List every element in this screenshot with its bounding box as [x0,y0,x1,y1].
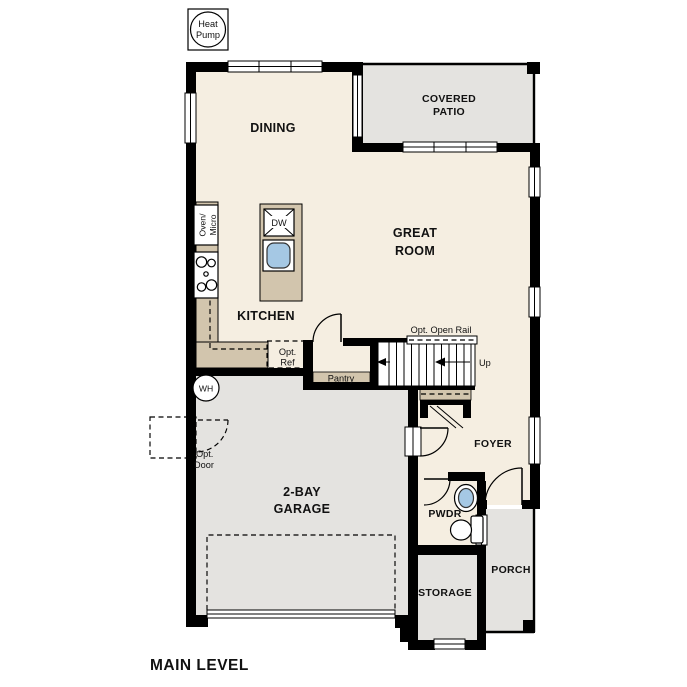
wall-storage-bottom-right [465,640,486,650]
oven-micro-label-2: Micro [208,214,218,235]
heat-pump-icon: Heat Pump [188,9,228,50]
wall-closet-stub-right [463,405,471,418]
heat-pump-label-2: Pump [196,30,220,40]
wall-storage-jog [400,617,418,642]
window-dining-left [185,93,196,143]
wall-garage-right [408,385,418,642]
window-greatroom-lower [529,287,540,317]
wall-storage-bottom-left [408,640,435,650]
covered-patio-label-1: COVERED [422,93,476,105]
wall-powder-porch [477,481,486,650]
up-label: Up [479,358,491,368]
wall-powder-top [448,472,485,481]
opt-open-rail-label: Opt. Open Rail [411,325,472,335]
storage-door [434,639,465,649]
water-heater-label: WH [199,384,213,394]
great-room-label-2: ROOM [395,244,435,258]
garage-entry-opening [405,427,421,456]
opt-ref-label-1: Opt. [279,347,296,357]
wall-closet-stub-left [420,405,428,418]
counter-bottom [196,342,268,368]
oven-micro-label-1: Oven/ [198,213,208,237]
floor-plan: Oven/ Micro DW Opt. Ref [0,0,687,687]
foyer-label: FOYER [474,438,512,450]
opt-ref-label-2: Ref [280,358,295,368]
cooktop-icon [194,252,218,298]
opt-door-label-2: Door [194,460,214,470]
window-patio-slider [403,142,497,152]
water-heater-icon: WH [193,375,219,401]
wall-storage-top [408,545,486,555]
pantry-label: Pantry [328,374,355,384]
heat-pump-label-1: Heat [198,19,218,29]
wall-exterior-left [186,62,196,625]
porch-label: PORCH [491,564,530,576]
window-dining-patio [353,75,362,137]
floor-plan-page: Oven/ Micro DW Opt. Ref [0,0,687,687]
wall-closet [420,400,471,405]
oven-micro: Oven/ Micro [194,205,218,245]
open-rail [407,336,477,344]
window-foyer [529,417,540,464]
window-dining-top [228,61,322,72]
window-greatroom-upper [529,167,540,197]
wall-garage-bottom-left [186,615,208,627]
storage-label: STORAGE [418,587,472,599]
wall-foyer-porch-right [522,500,540,509]
dishwasher-label: DW [271,218,287,228]
dining-label: DINING [250,121,296,135]
great-room-label-1: GREAT [393,226,437,240]
opt-door-label-1: Opt. [196,449,213,459]
covered-patio-label-2: PATIO [433,106,465,118]
garage-label-2: GARAGE [274,502,331,516]
stairs [377,336,477,386]
kitchen-label: KITCHEN [237,309,295,323]
kitchen-sink-icon [263,240,294,271]
dishwasher-icon: DW [264,209,294,236]
page-title: MAIN LEVEL [150,657,249,674]
powder-label: PWDR [428,508,461,520]
garage-label-1: 2-BAY [283,485,321,499]
garage-door-sill [207,610,395,618]
